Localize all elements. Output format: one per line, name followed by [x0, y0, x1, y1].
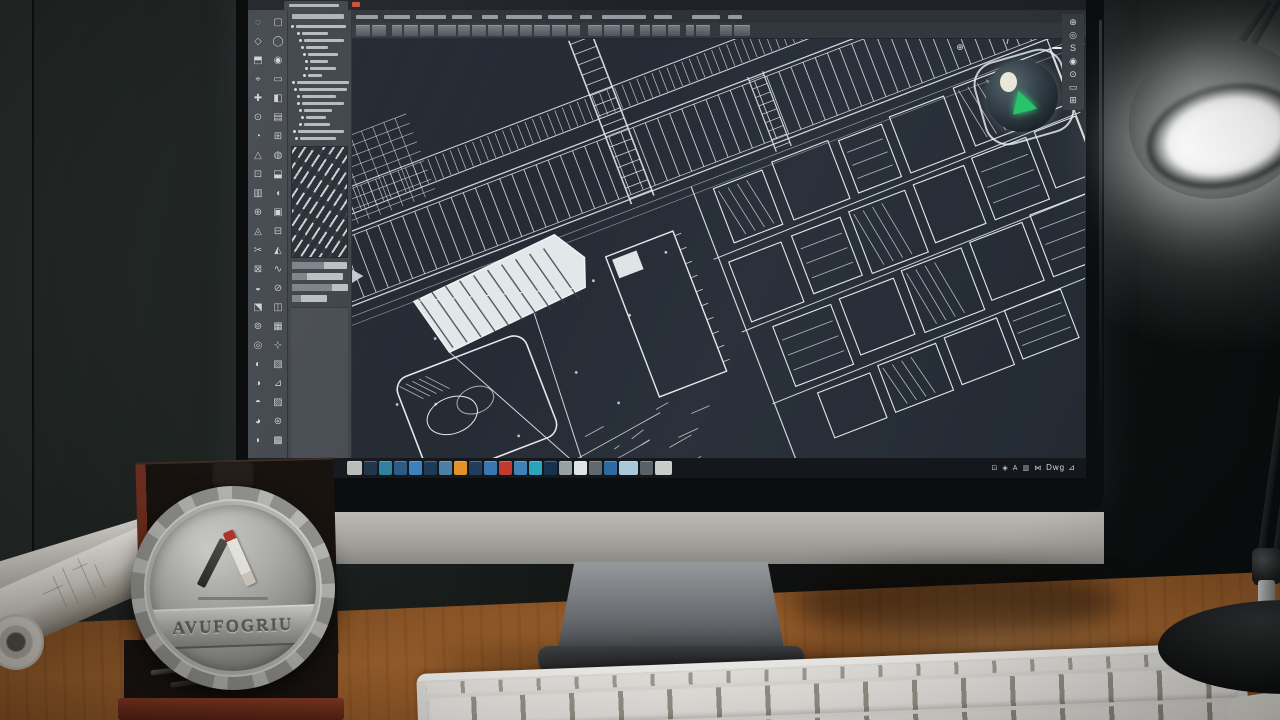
tool-icon[interactable]: ◯ [268, 32, 288, 51]
taskbar-app-icon[interactable] [469, 461, 482, 475]
monitor-stand-neck [556, 562, 786, 658]
layer-tree-item[interactable] [291, 93, 348, 100]
toolbar-button[interactable] [568, 25, 580, 36]
taskbar-app-icon[interactable] [529, 461, 542, 475]
layer-item-icon [301, 116, 304, 119]
document-tab-label [289, 4, 339, 7]
medal-logo-left-stroke [197, 538, 229, 588]
layer-item-icon [295, 137, 298, 140]
layer-tree-item[interactable] [291, 114, 348, 121]
drawing-preview-thumbnail[interactable] [291, 146, 348, 258]
layer-item-icon [305, 60, 308, 63]
compass-icon[interactable]: ⊕ [952, 41, 968, 54]
layer-item-label [302, 102, 344, 105]
taskbar-app-icon[interactable] [347, 461, 362, 475]
toolbar-button[interactable] [356, 25, 370, 36]
layer-item-icon [297, 32, 300, 35]
taskbar-app-icon[interactable] [514, 461, 527, 475]
taskbar-app-icon[interactable] [604, 461, 617, 475]
tool-icon[interactable]: ▤ [268, 108, 288, 127]
right-toolbar-icon[interactable]: ◉ [1065, 55, 1081, 68]
tool-icon[interactable]: ⊟ [268, 222, 288, 241]
tool-icon[interactable]: ⬓ [268, 165, 288, 184]
menu-bar [352, 10, 1086, 23]
close-button[interactable] [352, 2, 360, 7]
toolbar-button[interactable] [588, 25, 602, 36]
medal-logo-pencil-stroke [223, 529, 257, 586]
taskbar-app-icon[interactable] [655, 461, 672, 475]
toolbar-button[interactable] [686, 25, 694, 36]
toolbar-button[interactable] [472, 25, 486, 36]
toolbar-button[interactable] [488, 25, 502, 36]
layer-item-label [310, 67, 336, 70]
layer-tree-item[interactable] [291, 30, 348, 37]
menu-item[interactable] [692, 15, 720, 19]
tool-palette: ◌▢◇◯⬒◉⌖▭✚◧⊙▤◔⊞△◍⊡⬓▥◖⊕▣◬⊟✂◭⊠∿◒⊘⬔◫⊚▦◎⊹◐▧◑⊿… [248, 10, 288, 458]
toolbar-button[interactable] [640, 25, 650, 36]
taskbar-app-icon[interactable] [424, 461, 437, 475]
layer-item-icon [299, 123, 302, 126]
menu-item[interactable] [602, 15, 646, 19]
status-glyph[interactable]: ⋈ [1034, 465, 1041, 472]
tool-icon[interactable]: ⊡ [248, 165, 268, 184]
drawing-canvas[interactable]: ⊕ [352, 39, 1086, 458]
toolbar-button[interactable] [734, 25, 750, 36]
toolbar-button[interactable] [520, 25, 532, 36]
toolbar-button[interactable] [392, 25, 402, 36]
award-medal: AVUFOGRIU [131, 486, 335, 690]
taskbar-app-icon[interactable] [439, 461, 452, 475]
blueprint-drawing [352, 39, 1085, 458]
layer-tree-item[interactable] [291, 86, 348, 93]
status-glyph[interactable]: ▥ [1022, 465, 1029, 472]
taskbar-app-icon[interactable] [364, 461, 377, 475]
tool-icon[interactable]: ▨ [268, 393, 288, 412]
layer-tree-item[interactable] [291, 37, 348, 44]
workspace-scene: ◌▢◇◯⬒◉⌖▭✚◧⊙▤◔⊞△◍⊡⬓▥◖⊕▣◬⊟✂◭⊠∿◒⊘⬔◫⊚▦◎⊹◐▧◑⊿… [0, 0, 1280, 720]
layer-item-icon [303, 74, 306, 77]
tool-icon[interactable]: ✚ [248, 89, 268, 108]
menu-item[interactable] [728, 15, 742, 19]
tool-icon[interactable]: ∿ [268, 260, 288, 279]
taskbar-app-icon[interactable] [499, 461, 512, 475]
navigation-sphere[interactable] [986, 60, 1058, 132]
right-toolbar: ⊕◎S◉⊙▭⊞ [1062, 14, 1084, 110]
toolbar-button[interactable] [668, 25, 680, 36]
tool-icon[interactable]: ◗ [248, 431, 268, 450]
nav-tick [1052, 47, 1062, 49]
status-glyph[interactable]: ⊡ [992, 465, 998, 472]
taskbar-app-icon[interactable] [574, 461, 587, 475]
property-slider[interactable] [292, 295, 327, 302]
property-sliders [291, 262, 348, 302]
layer-item-label [308, 53, 338, 56]
right-toolbar-icon[interactable]: S [1065, 42, 1081, 55]
layer-item-label [302, 95, 336, 98]
layer-item-label [299, 88, 347, 91]
layer-item-label [304, 109, 332, 112]
tool-icon[interactable]: ◑ [248, 374, 268, 393]
layer-tree-item[interactable] [291, 58, 348, 65]
layer-item-icon [301, 46, 304, 49]
layer-tree [291, 23, 348, 142]
layer-item-label [302, 32, 328, 35]
property-slider[interactable] [292, 273, 343, 280]
menu-item[interactable] [482, 15, 498, 19]
menu-item[interactable] [452, 15, 472, 19]
layer-item-label [300, 137, 336, 140]
layer-tree-item[interactable] [291, 72, 348, 79]
toolbar-button[interactable] [420, 25, 434, 36]
layer-item-label [306, 116, 326, 119]
tool-icon[interactable]: ▢ [268, 13, 288, 32]
toolbar-button[interactable] [404, 25, 418, 36]
monitor-aluminum-chin [236, 512, 1104, 564]
monitor-shadow [790, 568, 1120, 638]
layer-item-label [296, 25, 346, 28]
tool-icon[interactable]: ⌖ [248, 70, 268, 89]
tool-icon[interactable]: ◒ [248, 279, 268, 298]
tool-icon[interactable]: ◎ [248, 336, 268, 355]
tool-icon[interactable]: △ [248, 146, 268, 165]
menu-item[interactable] [580, 15, 592, 19]
navball-highlight [1000, 72, 1017, 92]
main-area: ⊕ [352, 10, 1086, 458]
layer-tree-item[interactable] [291, 121, 348, 128]
layer-item-label [310, 60, 328, 63]
tool-icon[interactable]: ⊘ [268, 279, 288, 298]
os-taskbar: ⊡◈A▥⋈Dwg ⊿ [248, 458, 1086, 478]
layer-tree-item[interactable] [291, 65, 348, 72]
tool-icon[interactable]: ◓ [248, 393, 268, 412]
right-toolbar-icon[interactable]: ⊙ [1065, 68, 1081, 81]
panel-header [292, 14, 344, 19]
layer-item-icon [292, 81, 295, 84]
menu-item[interactable] [416, 15, 446, 19]
navball-green-marker [1008, 87, 1038, 114]
right-toolbar-icon[interactable]: ▭ [1065, 81, 1081, 94]
toolbar [352, 23, 1086, 39]
layer-item-icon [293, 130, 296, 133]
menu-item[interactable] [356, 15, 378, 19]
toolbar-button[interactable] [534, 25, 550, 36]
tool-icon[interactable]: ⊠ [248, 260, 268, 279]
menu-item[interactable] [548, 15, 572, 19]
tool-icon[interactable]: ⊿ [268, 374, 288, 393]
menu-item[interactable] [654, 15, 672, 19]
toolbar-button[interactable] [438, 25, 456, 36]
tool-icon[interactable]: ◬ [248, 222, 268, 241]
property-slider[interactable] [292, 262, 347, 269]
tool-icon[interactable]: ▭ [268, 70, 288, 89]
tool-icon[interactable]: ◌ [248, 13, 268, 32]
taskbar-app-icon[interactable] [619, 461, 638, 475]
taskbar-app-icon[interactable] [640, 461, 653, 475]
layer-item-icon [305, 67, 308, 70]
tool-icon[interactable]: ◫ [268, 298, 288, 317]
toolbar-button[interactable] [720, 25, 732, 36]
tool-icon[interactable]: ▣ [268, 203, 288, 222]
layer-item-icon [294, 88, 297, 91]
layer-tree-item[interactable] [291, 107, 348, 114]
menu-item[interactable] [384, 15, 410, 19]
layer-tree-item[interactable] [291, 79, 348, 86]
layer-tree-item[interactable] [291, 23, 348, 30]
toolbar-button[interactable] [696, 25, 710, 36]
toolbar-button[interactable] [552, 25, 566, 36]
layer-tree-item[interactable] [291, 135, 348, 142]
taskbar-app-icon[interactable] [379, 461, 392, 475]
menu-item[interactable] [506, 15, 542, 19]
tool-icon[interactable]: ⬔ [248, 298, 268, 317]
tool-icon[interactable]: ◕ [248, 412, 268, 431]
tool-icon[interactable]: ▩ [268, 431, 288, 450]
tool-icon[interactable]: ✂ [248, 241, 268, 260]
layer-item-icon [299, 39, 302, 42]
app-titlebar [248, 0, 1086, 10]
status-glyph[interactable]: ◈ [1002, 465, 1007, 472]
layer-tree-item[interactable] [291, 44, 348, 51]
taskbar-app-icon[interactable] [409, 461, 422, 475]
layer-tree-item[interactable] [291, 100, 348, 107]
toolbar-button[interactable] [622, 25, 634, 36]
layer-item-icon [297, 95, 300, 98]
medal-case-front-lip [118, 698, 344, 720]
layer-item-label [297, 81, 349, 84]
taskbar-app-icon[interactable] [484, 461, 497, 475]
cad-application-window[interactable]: ◌▢◇◯⬒◉⌖▭✚◧⊙▤◔⊞△◍⊡⬓▥◖⊕▣◬⊟✂◭⊠∿◒⊘⬔◫⊚▦◎⊹◐▧◑⊿… [248, 0, 1086, 478]
right-toolbar-icon[interactable]: ⊞ [1065, 94, 1081, 107]
tool-icon[interactable]: ◇ [248, 32, 268, 51]
layer-item-label [306, 46, 328, 49]
lamp-arm-bracket [1252, 548, 1280, 584]
tool-icon[interactable]: ⬒ [248, 51, 268, 70]
tool-icon[interactable]: ⊞ [268, 127, 288, 146]
layer-item-icon [291, 25, 294, 28]
taskbar-app-icon[interactable] [394, 461, 407, 475]
tool-icon[interactable]: ◖ [268, 184, 288, 203]
layer-item-icon [299, 109, 302, 112]
tool-icon[interactable]: ⊚ [248, 317, 268, 336]
taskbar-app-icon[interactable] [454, 461, 467, 475]
toolbar-button[interactable] [372, 25, 386, 36]
layer-item-icon [303, 53, 306, 56]
tool-icon[interactable]: ▦ [268, 317, 288, 336]
toolbar-button[interactable] [504, 25, 518, 36]
tool-icon[interactable]: ⊛ [268, 412, 288, 431]
toolbar-button[interactable] [458, 25, 470, 36]
right-toolbar-icon[interactable]: ⊕ [1065, 16, 1081, 29]
tool-icon[interactable]: ◍ [268, 146, 288, 165]
layer-item-icon [297, 102, 300, 105]
taskbar-app-icon[interactable] [544, 461, 557, 475]
layer-item-label [304, 123, 330, 126]
tool-icon[interactable]: ⊕ [248, 203, 268, 222]
medal-engraving: AVUFOGRIU [172, 615, 293, 639]
layers-side-panel [288, 10, 352, 458]
layer-item-label [304, 39, 344, 42]
tool-icon[interactable]: ◭ [268, 241, 288, 260]
layer-item-label [308, 74, 322, 77]
taskbar-status: ⊡◈A▥⋈Dwg ⊿ [992, 464, 1077, 472]
property-slider[interactable] [292, 284, 348, 291]
medal-engraving-band: AVUFOGRIU [150, 604, 316, 650]
medal-face: AVUFOGRIU [150, 505, 316, 671]
tool-icon[interactable]: ⊙ [248, 108, 268, 127]
tool-icon[interactable]: ◔ [248, 127, 268, 146]
document-tab[interactable] [284, 1, 348, 10]
layer-tree-item[interactable] [291, 51, 348, 58]
tool-icon[interactable]: ⊹ [268, 336, 288, 355]
layer-tree-item[interactable] [291, 128, 348, 135]
tool-icon[interactable]: ▥ [248, 184, 268, 203]
app-body: ◌▢◇◯⬒◉⌖▭✚◧⊙▤◔⊞△◍⊡⬓▥◖⊕▣◬⊟✂◭⊠∿◒⊘⬔◫⊚▦◎⊹◐▧◑⊿… [248, 10, 1086, 458]
taskbar-app-icon[interactable] [559, 461, 572, 475]
toolbar-button[interactable] [652, 25, 666, 36]
medal-small-engraving [198, 597, 268, 600]
right-toolbar-icon[interactable]: ◎ [1065, 29, 1081, 42]
tool-icon[interactable]: ◐ [248, 355, 268, 374]
status-glyph[interactable]: A [1013, 465, 1018, 472]
tool-icon[interactable]: ◉ [268, 51, 288, 70]
layer-item-label [298, 130, 344, 133]
taskbar-app-icon[interactable] [589, 461, 602, 475]
toolbar-button[interactable] [604, 25, 620, 36]
panel-empty-area [291, 307, 348, 478]
tool-icon[interactable]: ▧ [268, 355, 288, 374]
tool-icon[interactable]: ◧ [268, 89, 288, 108]
status-label: Dwg ⊿ [1046, 464, 1076, 472]
